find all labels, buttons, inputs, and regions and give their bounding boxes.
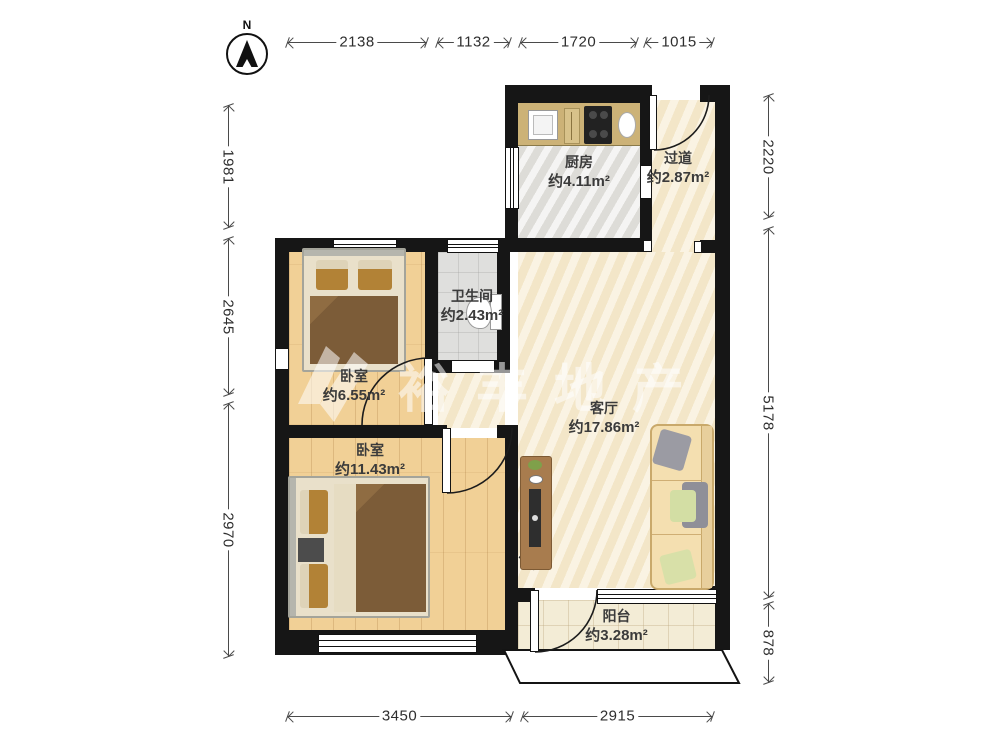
dimension-top-3: 1015 [645,34,713,50]
window-kitchen [505,147,519,209]
wall-end-cap [643,240,652,252]
wall-segment [275,425,447,438]
north-arrow-icon: N [224,18,270,75]
dimension-label: 1132 [453,34,493,51]
window-bathroom [447,239,499,253]
dimension-bottom-1: 2915 [522,708,713,724]
dimension-right-1: 5178 [760,228,776,598]
bedroom-large-area: 约11.43m² [300,460,440,480]
dimension-label: 878 [760,627,777,660]
room-label-balcony: 阳台 约3.28m² [549,606,684,646]
hallway-area: 约2.87m² [638,168,718,188]
sofa-pillow [659,549,697,586]
double-bed-icon [288,476,430,618]
dimension-label: 2915 [597,708,638,725]
dimension-top-1: 1132 [437,34,510,50]
floor-plan: 厨房 约4.11m² 过道 约2.87m² 卫生间 约2.43m² 卧室 约6.… [0,0,1000,750]
wall-end-cap [694,241,702,253]
bedroom-small-area: 约6.55m² [294,386,414,406]
room-label-kitchen: 厨房 约4.11m² [518,152,640,192]
double-bed-icon [302,248,406,372]
window-balcony-sliding [597,589,717,604]
dimension-label: 1720 [558,34,599,51]
dimension-label: 2220 [760,136,777,177]
floor-plan-page: 厨房 约4.11m² 过道 约2.87m² 卫生间 约2.43m² 卧室 约6.… [0,0,1000,750]
stove-icon [584,106,612,144]
vestibule-floor [438,373,505,428]
plant-icon [528,460,542,470]
dimension-label: 2645 [220,296,237,337]
room-label-bedroom-small: 卧室 约6.55m² [294,366,414,406]
living-room-name: 客厅 [539,398,669,418]
wall-segment [505,85,652,103]
bedroom-small-name: 卧室 [294,366,414,386]
bedroom-large-door-leaf [442,428,451,493]
bedroom-large-name: 卧室 [300,440,440,460]
dimension-top-0: 2138 [287,34,427,50]
basin-icon [618,112,636,138]
dimension-label: 2970 [220,509,237,550]
dimension-top-2: 1720 [520,34,637,50]
living-room-area: 约17.86m² [539,418,669,438]
dimension-label: 5178 [760,392,777,433]
kitchen-area: 约4.11m² [518,172,640,192]
room-label-living-room: 客厅 约17.86m² [539,398,669,438]
dimension-label: 3450 [379,708,420,725]
balcony-door-leaf [530,590,539,652]
dimension-right-0: 2220 [760,95,776,218]
window-bedroom-small-left [276,348,288,370]
dimension-bottom-0: 3450 [287,708,512,724]
balcony-3d-wall [504,650,739,683]
dimension-left-1: 2645 [220,238,236,395]
wall-segment [505,425,518,650]
kitchen-name: 厨房 [518,152,640,172]
window-bedroom-large [318,634,477,653]
dimension-label: 1015 [658,34,699,51]
room-label-bedroom-large: 卧室 约11.43m² [300,440,440,480]
entrance-door-leaf [649,95,657,150]
hallway-name: 过道 [638,148,718,168]
bathroom-name: 卫生间 [428,286,516,306]
room-label-bathroom: 卫生间 约2.43m² [428,286,516,326]
dimension-label: 1981 [220,146,237,187]
dimension-label: 2138 [336,34,377,51]
cutting-board-icon [564,108,580,144]
compass-n-label: N [224,18,270,32]
balcony-name: 阳台 [549,606,684,626]
dimension-left-0: 1981 [220,105,236,228]
sofa-cushion [670,490,696,522]
wall-segment [700,240,716,253]
wall-segment [275,238,289,655]
opening-bathroom-door [451,361,495,372]
bedroom-small-door-leaf [424,358,433,425]
dimension-right-2: 878 [760,603,776,683]
balcony-area: 约3.28m² [549,626,684,646]
sofa-icon [650,424,714,590]
compass-ring [226,33,268,75]
sink-icon [528,110,558,140]
dimension-left-2: 2970 [220,403,236,657]
bathroom-area: 约2.43m² [428,306,516,326]
tv-cabinet-icon [520,456,552,570]
room-label-hallway: 过道 约2.87m² [638,148,718,188]
